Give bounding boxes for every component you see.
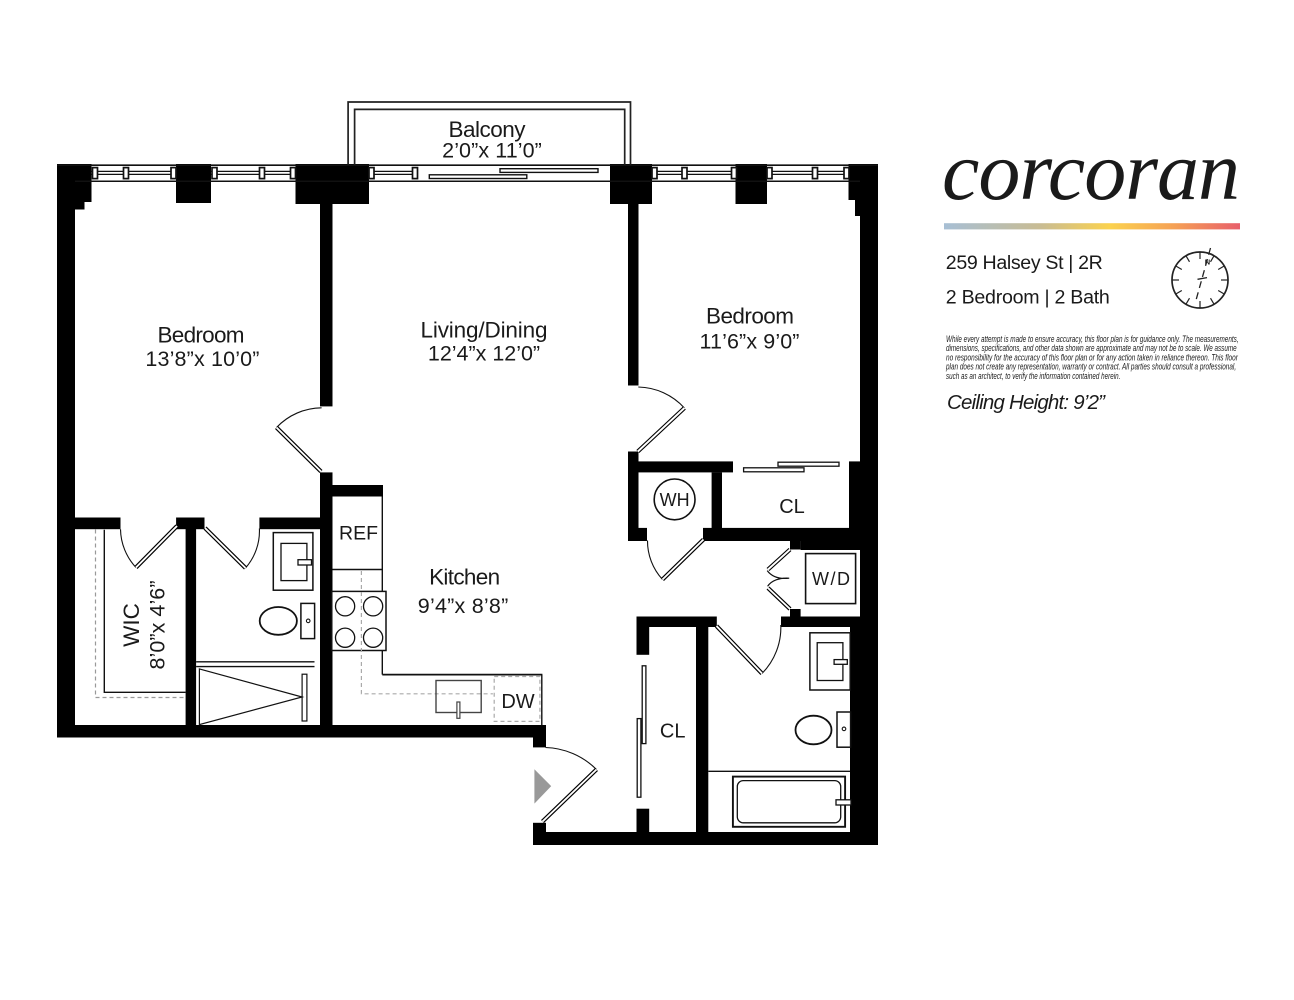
svg-text:2’0”x 11’0”: 2’0”x 11’0” (442, 139, 542, 163)
svg-text:such as an architect, to verif: such as an architect, to verify the info… (946, 371, 1120, 382)
svg-text:Bedroom: Bedroom (706, 304, 794, 329)
svg-text:CL: CL (660, 720, 686, 742)
svg-text:11’6”x 9’0”: 11’6”x 9’0” (700, 330, 800, 354)
svg-text:corcoran: corcoran (942, 125, 1240, 218)
svg-text:W/D: W/D (812, 569, 850, 589)
svg-text:9’4”x 8’8”: 9’4”x 8’8” (418, 594, 509, 618)
svg-text:Kitchen: Kitchen (429, 565, 500, 590)
svg-text:8’0”x 4’6”: 8’0”x 4’6” (146, 581, 170, 670)
svg-text:CL: CL (779, 496, 805, 518)
svg-text:Bedroom: Bedroom (158, 322, 245, 347)
svg-text:WH: WH (660, 490, 690, 510)
svg-text:2 Bedroom | 2 Bath: 2 Bedroom | 2 Bath (946, 287, 1110, 309)
svg-text:13’8”x 10’0”: 13’8”x 10’0” (145, 347, 259, 371)
svg-text:Ceiling Height: 9’2”: Ceiling Height: 9’2” (947, 391, 1106, 414)
svg-text:WIC: WIC (119, 603, 144, 647)
svg-text:DW: DW (501, 691, 534, 713)
svg-text:N: N (1205, 258, 1210, 267)
svg-text:12’4”x 12’0”: 12’4”x 12’0” (428, 342, 540, 366)
svg-text:259 Halsey St | 2R: 259 Halsey St | 2R (946, 252, 1103, 274)
svg-text:Living/Dining: Living/Dining (421, 318, 548, 343)
svg-text:REF: REF (339, 523, 378, 545)
